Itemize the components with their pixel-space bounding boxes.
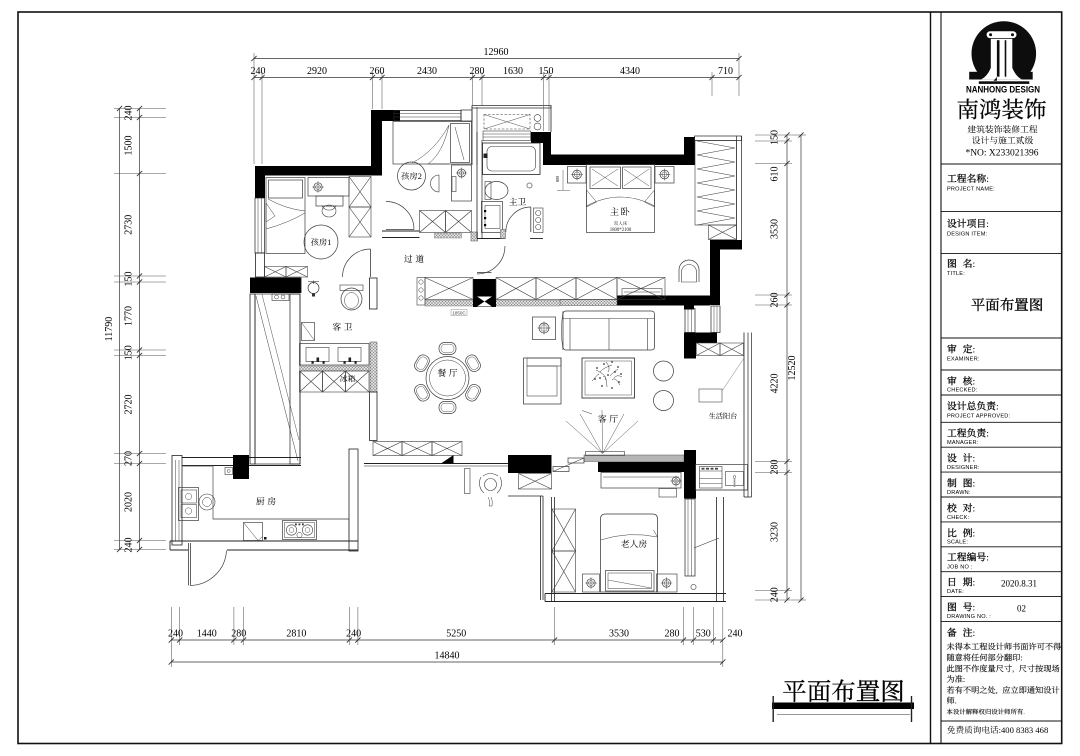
svg-text:.: . [955, 697, 957, 706]
svg-text:280: 280 [665, 629, 680, 640]
svg-text:12960: 12960 [484, 47, 509, 58]
svg-text::: : [973, 529, 976, 540]
svg-text:2430: 2430 [417, 66, 437, 77]
svg-text:3530: 3530 [770, 219, 781, 239]
svg-text::: : [973, 377, 976, 388]
svg-text::: : [973, 259, 976, 270]
svg-text:CHECKED:: CHECKED: [947, 388, 978, 394]
svg-text:260: 260 [370, 66, 385, 77]
svg-text:JOB NO :: JOB NO : [947, 565, 973, 571]
svg-text:PROJECT APPROVED:: PROJECT APPROVED: [947, 414, 1011, 420]
svg-text::: : [973, 578, 976, 589]
svg-text:240: 240 [770, 587, 781, 602]
svg-text:2020.8.31: 2020.8.31 [1001, 579, 1037, 589]
svg-text:2920: 2920 [307, 66, 327, 77]
svg-text::: : [973, 504, 976, 515]
svg-text::: : [973, 345, 976, 356]
svg-text:SCALE:: SCALE: [947, 540, 968, 546]
svg-text:150: 150 [124, 345, 135, 360]
svg-text:240: 240 [124, 538, 135, 553]
svg-text::: : [973, 628, 976, 639]
svg-text:DRAWING NO. :: DRAWING NO. : [947, 614, 991, 620]
svg-text:150: 150 [124, 272, 135, 287]
svg-text:280: 280 [770, 460, 781, 475]
svg-text:1770: 1770 [124, 306, 135, 326]
svg-text:DESIGN ITEM:: DESIGN ITEM: [947, 232, 988, 238]
svg-text::: : [986, 219, 989, 230]
svg-text:240: 240 [728, 629, 743, 640]
svg-text::: : [986, 553, 989, 564]
svg-text:12520: 12520 [787, 356, 798, 381]
svg-text:240: 240 [124, 106, 135, 121]
svg-text:DATE:: DATE: [947, 589, 964, 595]
svg-text:1800*2100: 1800*2100 [610, 228, 632, 233]
svg-text:280: 280 [470, 66, 485, 77]
svg-text:3530: 3530 [609, 629, 629, 640]
svg-text:11790: 11790 [104, 317, 115, 342]
svg-text:02: 02 [1017, 604, 1026, 614]
svg-text:DESIGNER:: DESIGNER: [947, 465, 980, 471]
svg-text:1440: 1440 [197, 629, 217, 640]
svg-text:150: 150 [539, 66, 554, 77]
svg-text:4340: 4340 [620, 66, 640, 77]
svg-text:2810: 2810 [286, 629, 306, 640]
svg-text:5250: 5250 [446, 629, 466, 640]
svg-text::: : [973, 454, 976, 465]
svg-text:530: 530 [696, 629, 711, 640]
svg-text:2720: 2720 [124, 395, 135, 415]
svg-text:240: 240 [251, 66, 266, 77]
svg-text:,: , [1012, 665, 1014, 674]
svg-text:14840: 14840 [435, 651, 460, 662]
svg-text:NANHONG DESIGN: NANHONG DESIGN [966, 85, 1040, 96]
svg-text:2: 2 [418, 172, 422, 181]
svg-text::: : [986, 174, 989, 185]
svg-text:CHECK:: CHECK: [947, 515, 970, 521]
svg-text:DRAWN:: DRAWN: [947, 490, 971, 496]
svg-text:800: 800 [555, 176, 560, 182]
svg-text:260: 260 [770, 293, 781, 308]
svg-text:240: 240 [168, 629, 183, 640]
svg-text::: : [1020, 654, 1022, 663]
svg-text:2730: 2730 [124, 215, 135, 235]
svg-text::: : [996, 402, 999, 413]
svg-text:1630: 1630 [503, 66, 523, 77]
svg-text:1850C: 1850C [452, 311, 466, 316]
svg-text:MANAGER:: MANAGER: [947, 440, 979, 446]
svg-text:3230: 3230 [770, 522, 781, 542]
svg-text:1: 1 [327, 238, 331, 247]
svg-text:150: 150 [770, 130, 781, 145]
svg-text:1500: 1500 [124, 136, 135, 156]
svg-text::: : [986, 429, 989, 440]
svg-text::: : [973, 603, 976, 614]
svg-text::: : [963, 675, 965, 684]
svg-text:TITLE:: TITLE: [947, 271, 965, 277]
svg-text:280: 280 [231, 629, 246, 640]
svg-text:EXAMINER:: EXAMINER: [947, 357, 980, 363]
svg-text:,: , [996, 686, 998, 695]
svg-text:710: 710 [718, 66, 733, 77]
svg-text:4220: 4220 [770, 374, 781, 394]
svg-text:610: 610 [770, 167, 781, 182]
svg-text:240: 240 [346, 629, 361, 640]
svg-text:*NO: X233021396: *NO: X233021396 [965, 149, 1038, 159]
svg-text::400 8383 468: :400 8383 468 [999, 725, 1049, 735]
svg-text:PROJECT NAME:: PROJECT NAME: [947, 187, 995, 193]
svg-text::: : [973, 479, 976, 490]
svg-text:270: 270 [124, 451, 135, 466]
svg-text:2020: 2020 [124, 492, 135, 512]
